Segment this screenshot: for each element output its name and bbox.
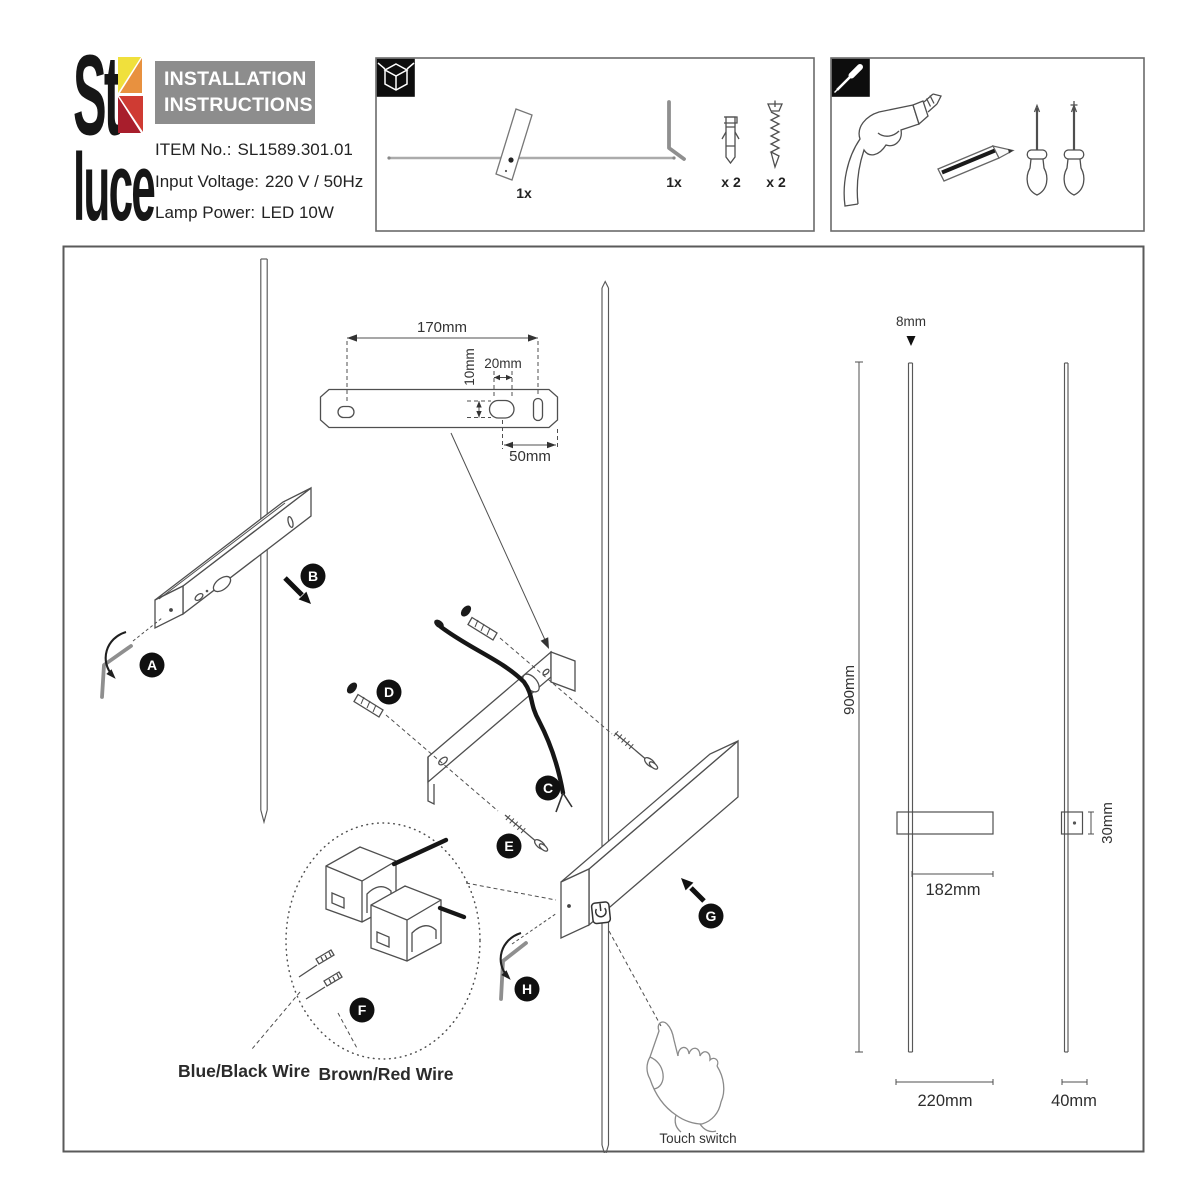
step-badge-c: C (536, 776, 561, 801)
step-badge-d-label: D (384, 684, 394, 700)
dim-body-height-label: 30mm (1099, 802, 1116, 844)
spec-item-no-value: SL1589.301.01 (238, 140, 353, 159)
package-box-border (376, 58, 814, 231)
screwdriver-icon (832, 59, 870, 97)
main-diagram: 170mm 20mm 10mm 50mm (62, 245, 1145, 1153)
tools-box-border (831, 58, 1144, 231)
header-title-line1: INSTALLATION (164, 66, 315, 92)
touch-switch-label: Touch switch (659, 1131, 736, 1146)
dim-body-depth-label: 40mm (1051, 1092, 1097, 1110)
spec-voltage-value: 220 V / 50Hz (265, 172, 363, 191)
dim-bracket-end-offset-label: 50mm (509, 448, 551, 465)
dim-body-length-label: 220mm (917, 1092, 972, 1110)
step-badge-h: H (515, 977, 540, 1002)
mounting-bracket-top-view (321, 390, 558, 428)
dim-bracket-hole-width-label: 20mm (484, 356, 522, 371)
dim-bracket-hole-height-label: 10mm (462, 348, 477, 386)
spec-power-value: LED 10W (261, 203, 334, 222)
screw-qty: x 2 (766, 174, 786, 190)
instruction-sheet: St luce INSTALLATION INSTRUCTIONS ITEM N… (0, 0, 1200, 1200)
spec-voltage-label: Input Voltage: (155, 172, 259, 191)
step-badge-g-label: G (706, 908, 717, 924)
set-screw-hole (169, 608, 173, 612)
dim-bracket-length-label: 170mm (417, 319, 467, 336)
step-badge-f-label: F (358, 1002, 367, 1018)
logo-luce-text: luce (73, 150, 154, 227)
step-badge-f: F (350, 998, 375, 1023)
step-badge-b-label: B (308, 568, 318, 584)
logo-st-text: St (73, 50, 118, 141)
touch-power-icon (591, 902, 610, 924)
package-contents-box: 1x 1x x 2 x 2 (375, 57, 815, 232)
header-title-line2: INSTRUCTIONS (164, 92, 315, 118)
step-badge-g: G (699, 904, 724, 929)
step-badge-h-label: H (522, 981, 532, 997)
main-diagram-border (64, 247, 1144, 1152)
lamp-qty: 1x (516, 185, 532, 201)
step-badge-a-label: A (147, 657, 157, 673)
step-badge-d: D (377, 680, 402, 705)
product-specs: ITEM No.:SL1589.301.01 Input Voltage:220… (155, 134, 363, 229)
logo-flag (117, 56, 145, 134)
spec-power-label: Lamp Power: (155, 203, 255, 222)
dim-body-offset-label: 182mm (925, 881, 980, 899)
spec-item-no-label: ITEM No.: (155, 140, 232, 159)
dim-rod-diameter-label: 8mm (896, 314, 926, 329)
dim-rod-length-label: 900mm (841, 665, 858, 715)
step-badge-a: A (140, 653, 165, 678)
wire-label-blue-black: Blue/Black Wire (178, 1061, 310, 1081)
step-badge-b: B (301, 564, 326, 589)
spec-item-no: ITEM No.:SL1589.301.01 (155, 134, 363, 166)
step-badge-e-label: E (504, 838, 513, 854)
wall-plug-qty: x 2 (721, 174, 741, 190)
wire-label-brown-red: Brown/Red Wire (319, 1064, 454, 1084)
hex-key-qty: 1x (666, 174, 682, 190)
step-badge-c-label: C (543, 780, 553, 796)
tools-box (830, 57, 1145, 232)
header-title-box: INSTALLATION INSTRUCTIONS (155, 61, 315, 124)
step-badge-e: E (497, 834, 522, 859)
spec-power: Lamp Power:LED 10W (155, 197, 363, 229)
spec-voltage: Input Voltage:220 V / 50Hz (155, 166, 363, 198)
package-cube-icon (377, 59, 415, 97)
